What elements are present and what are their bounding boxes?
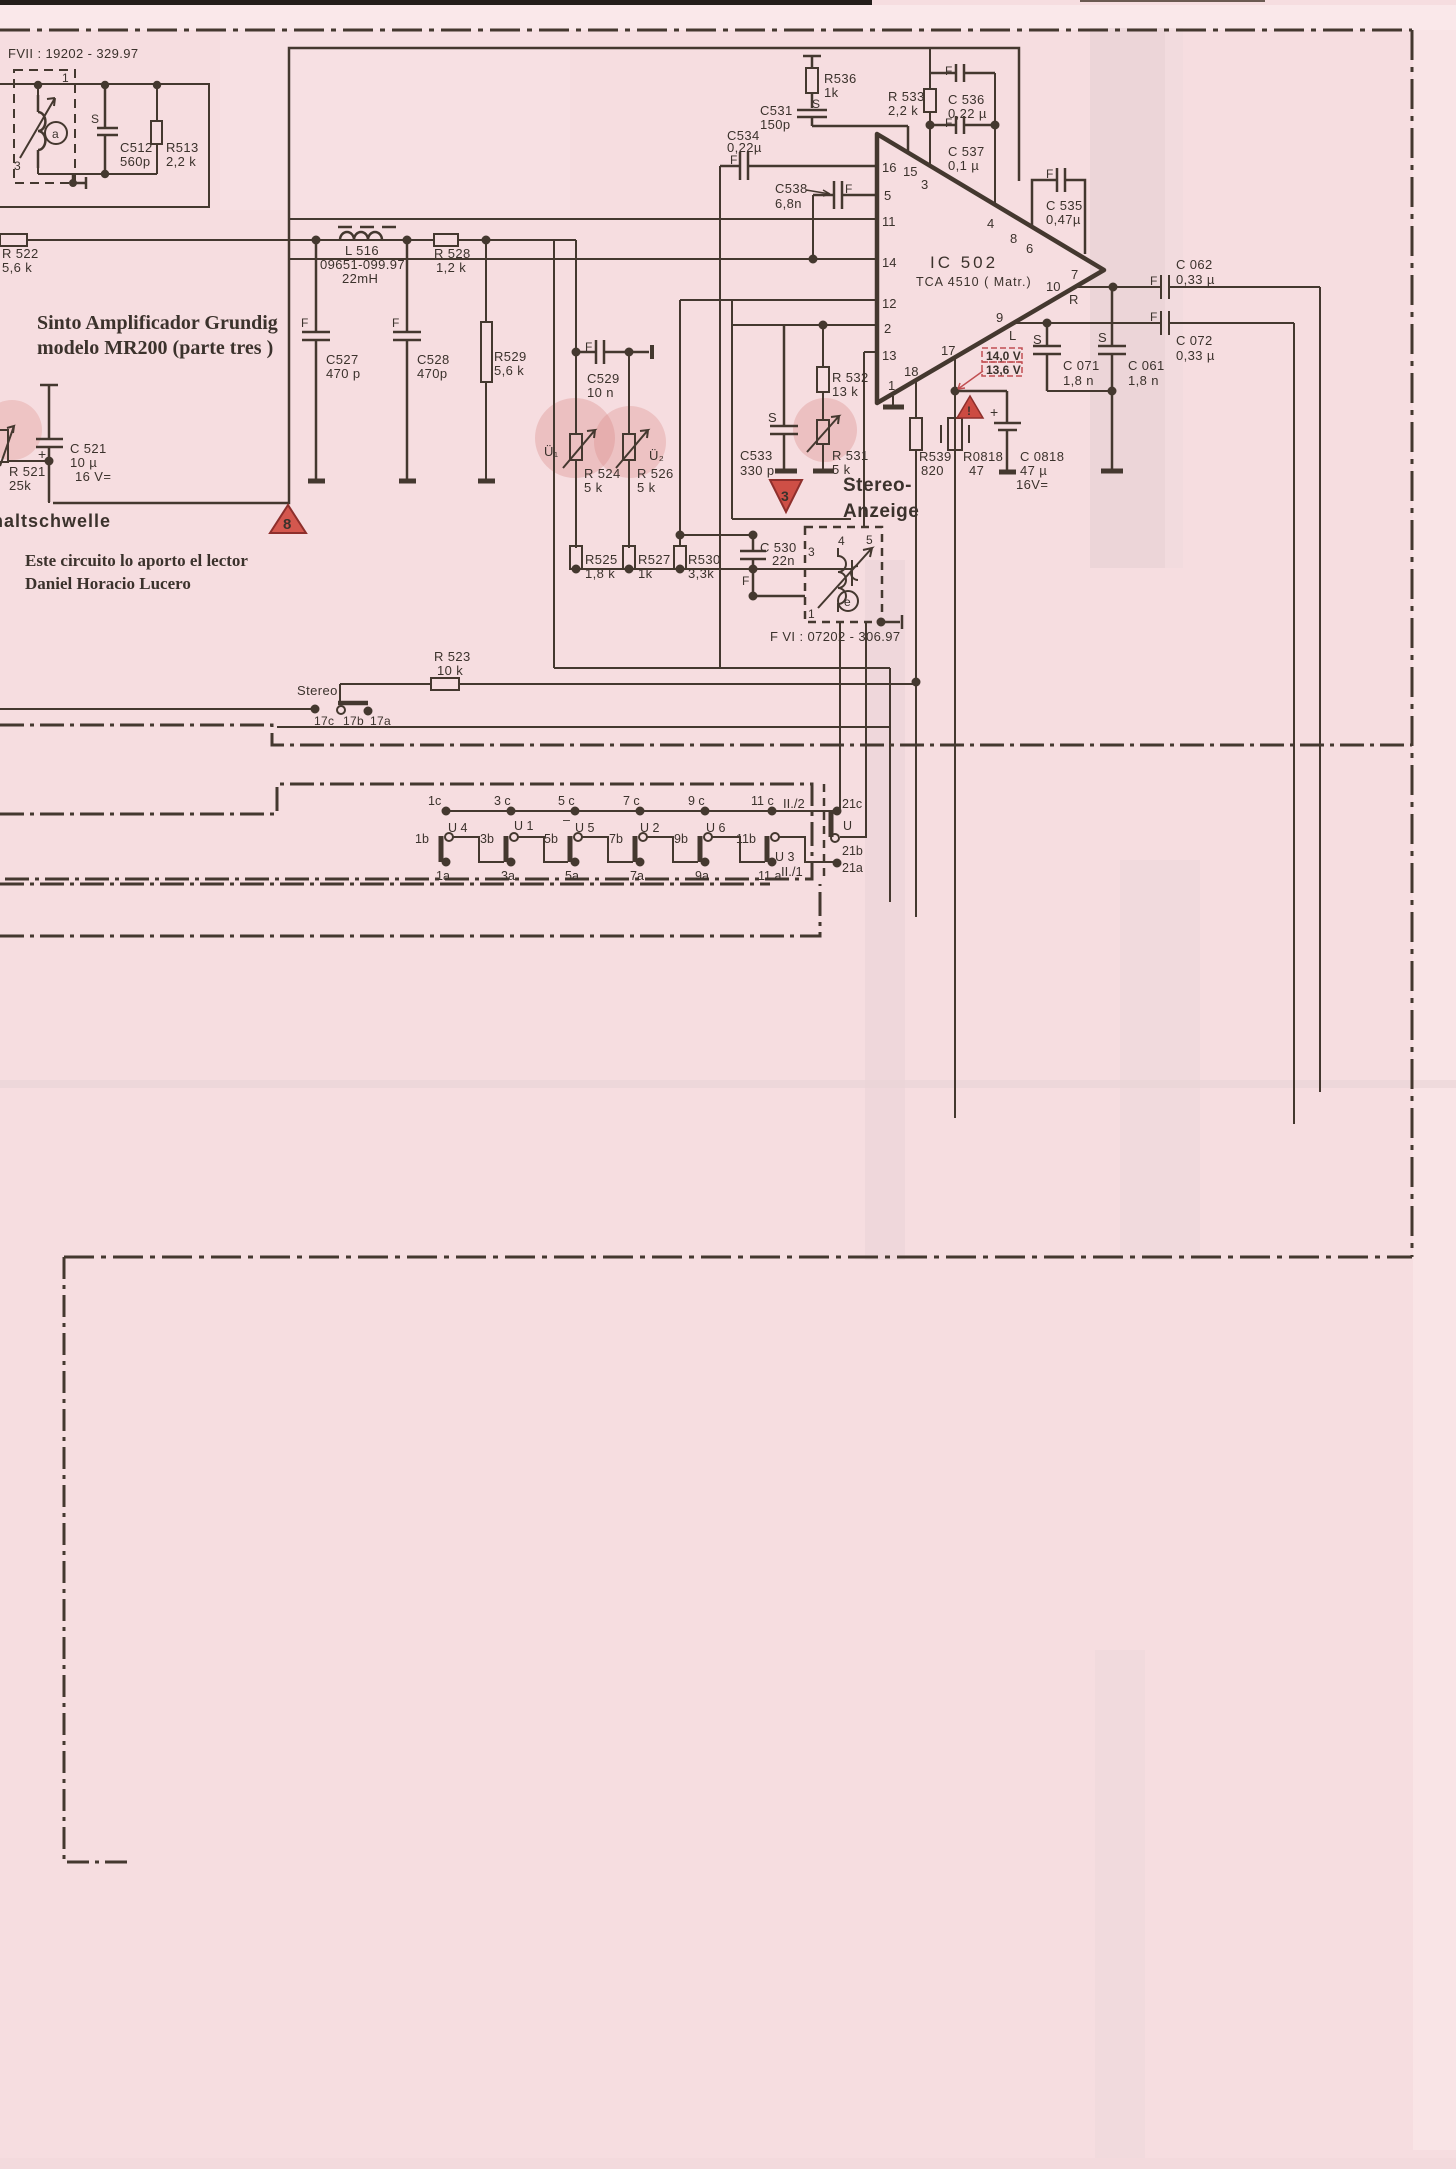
svg-text:17b: 17b <box>343 714 364 728</box>
svg-text:1b: 1b <box>415 832 429 846</box>
svg-text:II./1: II./1 <box>781 864 803 879</box>
svg-text:11 a: 11 a <box>758 869 781 883</box>
svg-text:8: 8 <box>1010 231 1017 246</box>
svg-text:U 3: U 3 <box>775 850 795 864</box>
svg-text:47 µ: 47 µ <box>1020 463 1047 478</box>
svg-text:Este circuito lo aporto el lec: Este circuito lo aporto el lector <box>25 551 248 570</box>
svg-text:13 k: 13 k <box>832 384 858 399</box>
svg-text:S: S <box>91 112 99 126</box>
svg-text:21a: 21a <box>842 861 863 875</box>
svg-text:14,0 V: 14,0 V <box>986 349 1021 363</box>
svg-text:22mH: 22mH <box>342 271 378 286</box>
svg-text:5 k: 5 k <box>832 462 851 477</box>
svg-text:C 521: C 521 <box>70 441 107 456</box>
svg-text:FVII : 19202 - 329.97: FVII : 19202 - 329.97 <box>8 46 139 61</box>
svg-text:Sinto Amplificador Grundig: Sinto Amplificador Grundig <box>37 312 278 334</box>
svg-text:3: 3 <box>14 159 21 173</box>
svg-text:18: 18 <box>904 364 918 379</box>
svg-text:C 0818: C 0818 <box>1020 449 1064 464</box>
svg-text:modelo MR200 (parte tres ): modelo MR200 (parte tres ) <box>37 337 273 359</box>
svg-text:C531: C531 <box>760 103 793 118</box>
svg-text:13: 13 <box>882 348 896 363</box>
svg-text:21c: 21c <box>842 797 862 811</box>
svg-text:9: 9 <box>996 310 1003 325</box>
svg-text:3: 3 <box>921 177 928 192</box>
svg-text:C 061: C 061 <box>1128 358 1165 373</box>
svg-text:4: 4 <box>838 534 845 548</box>
svg-text:a: a <box>52 127 59 141</box>
svg-text:R539: R539 <box>919 449 952 464</box>
svg-text:F: F <box>945 116 952 130</box>
svg-text:R 521: R 521 <box>9 464 46 479</box>
svg-text:5a: 5a <box>565 869 579 883</box>
svg-text:R: R <box>1069 292 1078 307</box>
svg-text:0,22 µ: 0,22 µ <box>948 106 987 121</box>
svg-text:Anzeige: Anzeige <box>843 501 919 522</box>
svg-text:!: ! <box>967 404 971 418</box>
svg-text:17: 17 <box>941 343 955 358</box>
svg-text:8: 8 <box>283 516 291 533</box>
svg-text:1: 1 <box>62 71 69 85</box>
svg-text:25k: 25k <box>9 478 31 493</box>
svg-text:L: L <box>1009 328 1016 343</box>
svg-text:470p: 470p <box>417 366 448 381</box>
svg-text:R536: R536 <box>824 71 857 86</box>
svg-text:F: F <box>1150 310 1157 324</box>
svg-text:5 k: 5 k <box>584 480 603 495</box>
svg-text:F: F <box>742 574 749 588</box>
svg-text:10: 10 <box>1046 279 1060 294</box>
svg-text:C 072: C 072 <box>1176 333 1213 348</box>
svg-text:C527: C527 <box>326 352 359 367</box>
svg-text:6,8n: 6,8n <box>775 196 802 211</box>
svg-text:II./2: II./2 <box>783 796 805 811</box>
svg-text:22n: 22n <box>772 553 795 568</box>
svg-text:F: F <box>301 316 308 330</box>
svg-text:0,47µ: 0,47µ <box>1046 212 1081 227</box>
svg-text:5: 5 <box>884 188 891 203</box>
svg-text:1,8 n: 1,8 n <box>1128 373 1159 388</box>
svg-text:Stereo-: Stereo- <box>843 475 912 496</box>
svg-text:3 c: 3 c <box>494 794 511 808</box>
svg-text:470 p: 470 p <box>326 366 361 381</box>
svg-text:3: 3 <box>781 488 789 504</box>
svg-text:C 062: C 062 <box>1176 257 1213 272</box>
svg-text:7: 7 <box>1071 267 1078 282</box>
svg-text:9b: 9b <box>674 832 688 846</box>
svg-text:1c: 1c <box>428 794 441 808</box>
svg-text:12: 12 <box>882 296 896 311</box>
svg-text:Stereo: Stereo <box>297 683 338 698</box>
svg-text:R 533: R 533 <box>888 89 925 104</box>
svg-text:21b: 21b <box>842 844 863 858</box>
svg-text:F: F <box>945 64 952 78</box>
svg-text:R 523: R 523 <box>434 649 471 664</box>
svg-text:R 532: R 532 <box>832 370 869 385</box>
svg-text:1: 1 <box>808 607 815 621</box>
svg-text:F: F <box>392 316 399 330</box>
svg-text:C538: C538 <box>775 181 808 196</box>
svg-text:5: 5 <box>866 533 873 547</box>
svg-text:5 c: 5 c <box>558 794 575 808</box>
svg-text:7 c: 7 c <box>623 794 640 808</box>
svg-text:R529: R529 <box>494 349 527 364</box>
svg-text:F VI : 07202 - 306.97: F VI : 07202 - 306.97 <box>770 629 901 644</box>
svg-text:14: 14 <box>882 255 896 270</box>
svg-text:C533: C533 <box>740 448 773 463</box>
svg-text:5,6 k: 5,6 k <box>2 260 32 275</box>
svg-text:C512: C512 <box>120 140 153 155</box>
svg-text:R0818: R0818 <box>963 449 1003 464</box>
svg-text:U: U <box>843 819 852 833</box>
svg-text:R527: R527 <box>638 552 671 567</box>
svg-text:1k: 1k <box>824 85 839 100</box>
svg-text:Daniel Horacio Lucero: Daniel Horacio Lucero <box>25 574 191 593</box>
svg-text:7a: 7a <box>630 869 644 883</box>
svg-text:S: S <box>768 410 777 425</box>
svg-text:C529: C529 <box>587 371 620 386</box>
svg-text:1: 1 <box>888 378 895 393</box>
svg-text:TCA 4510 ( Matr.): TCA 4510 ( Matr.) <box>916 275 1032 289</box>
svg-text:11: 11 <box>882 214 896 229</box>
svg-text:Ü₁: Ü₁ <box>544 444 559 459</box>
svg-text:17a: 17a <box>370 714 391 728</box>
svg-text:IC 502: IC 502 <box>930 253 998 272</box>
svg-text:R513: R513 <box>166 140 199 155</box>
svg-text:47: 47 <box>969 463 984 478</box>
svg-text:–: – <box>563 813 570 827</box>
svg-text:F: F <box>585 340 592 354</box>
svg-text:R 522: R 522 <box>2 246 39 261</box>
svg-text:1a: 1a <box>436 869 450 883</box>
svg-text:Ü₂: Ü₂ <box>649 448 664 463</box>
svg-text:15: 15 <box>903 164 917 179</box>
svg-text:U 1: U 1 <box>514 819 534 833</box>
svg-text:L 516: L 516 <box>345 243 379 258</box>
svg-text:7b: 7b <box>609 832 623 846</box>
svg-text:9 c: 9 c <box>688 794 705 808</box>
svg-text:13,6 V: 13,6 V <box>986 363 1021 377</box>
svg-text:haltschwelle: haltschwelle <box>0 511 111 531</box>
svg-text:R 531: R 531 <box>832 448 869 463</box>
svg-text:5 k: 5 k <box>637 480 656 495</box>
svg-text:5,6 k: 5,6 k <box>494 363 524 378</box>
svg-text:6: 6 <box>1026 241 1033 256</box>
svg-text:0,33 µ: 0,33 µ <box>1176 272 1215 287</box>
svg-text:2,2 k: 2,2 k <box>166 154 196 169</box>
svg-text:16V=: 16V= <box>1016 477 1048 492</box>
svg-text:R530: R530 <box>688 552 721 567</box>
svg-text:10 n: 10 n <box>587 385 614 400</box>
svg-text:2: 2 <box>884 321 891 336</box>
svg-text:10 k: 10 k <box>437 663 463 678</box>
svg-text:3b: 3b <box>480 832 494 846</box>
svg-text:150p: 150p <box>760 117 791 132</box>
svg-text:3: 3 <box>808 545 815 559</box>
svg-text:16 V=: 16 V= <box>75 469 111 484</box>
svg-text:F: F <box>1150 274 1157 288</box>
svg-text:R525: R525 <box>585 552 618 567</box>
svg-text:0,1 µ: 0,1 µ <box>948 158 979 173</box>
svg-text:C 071: C 071 <box>1063 358 1100 373</box>
svg-text:2,2 k: 2,2 k <box>888 103 918 118</box>
svg-text:3a: 3a <box>501 869 515 883</box>
svg-text:0,33 µ: 0,33 µ <box>1176 348 1215 363</box>
svg-text:e: e <box>844 595 851 609</box>
svg-text:R 524: R 524 <box>584 466 621 481</box>
svg-text:11b: 11b <box>736 832 756 846</box>
svg-text:1,2 k: 1,2 k <box>436 260 466 275</box>
svg-text:C528: C528 <box>417 352 450 367</box>
svg-text:9a: 9a <box>695 869 709 883</box>
svg-text:1,8 n: 1,8 n <box>1063 373 1094 388</box>
svg-text:11 c: 11 c <box>751 794 774 808</box>
svg-text:330 p: 330 p <box>740 463 775 478</box>
svg-text:5b: 5b <box>544 832 558 846</box>
svg-text:C 537: C 537 <box>948 144 985 159</box>
svg-text:C 536: C 536 <box>948 92 985 107</box>
svg-text:4: 4 <box>987 216 994 231</box>
svg-text:S: S <box>1098 330 1107 345</box>
svg-text:10 µ: 10 µ <box>70 455 97 470</box>
svg-text:820: 820 <box>921 463 944 478</box>
svg-text:R 526: R 526 <box>637 466 674 481</box>
svg-text:C 535: C 535 <box>1046 198 1083 213</box>
svg-text:16: 16 <box>882 160 896 175</box>
svg-text:+: + <box>990 404 998 420</box>
svg-text:17c: 17c <box>314 714 334 728</box>
svg-text:560p: 560p <box>120 154 151 169</box>
